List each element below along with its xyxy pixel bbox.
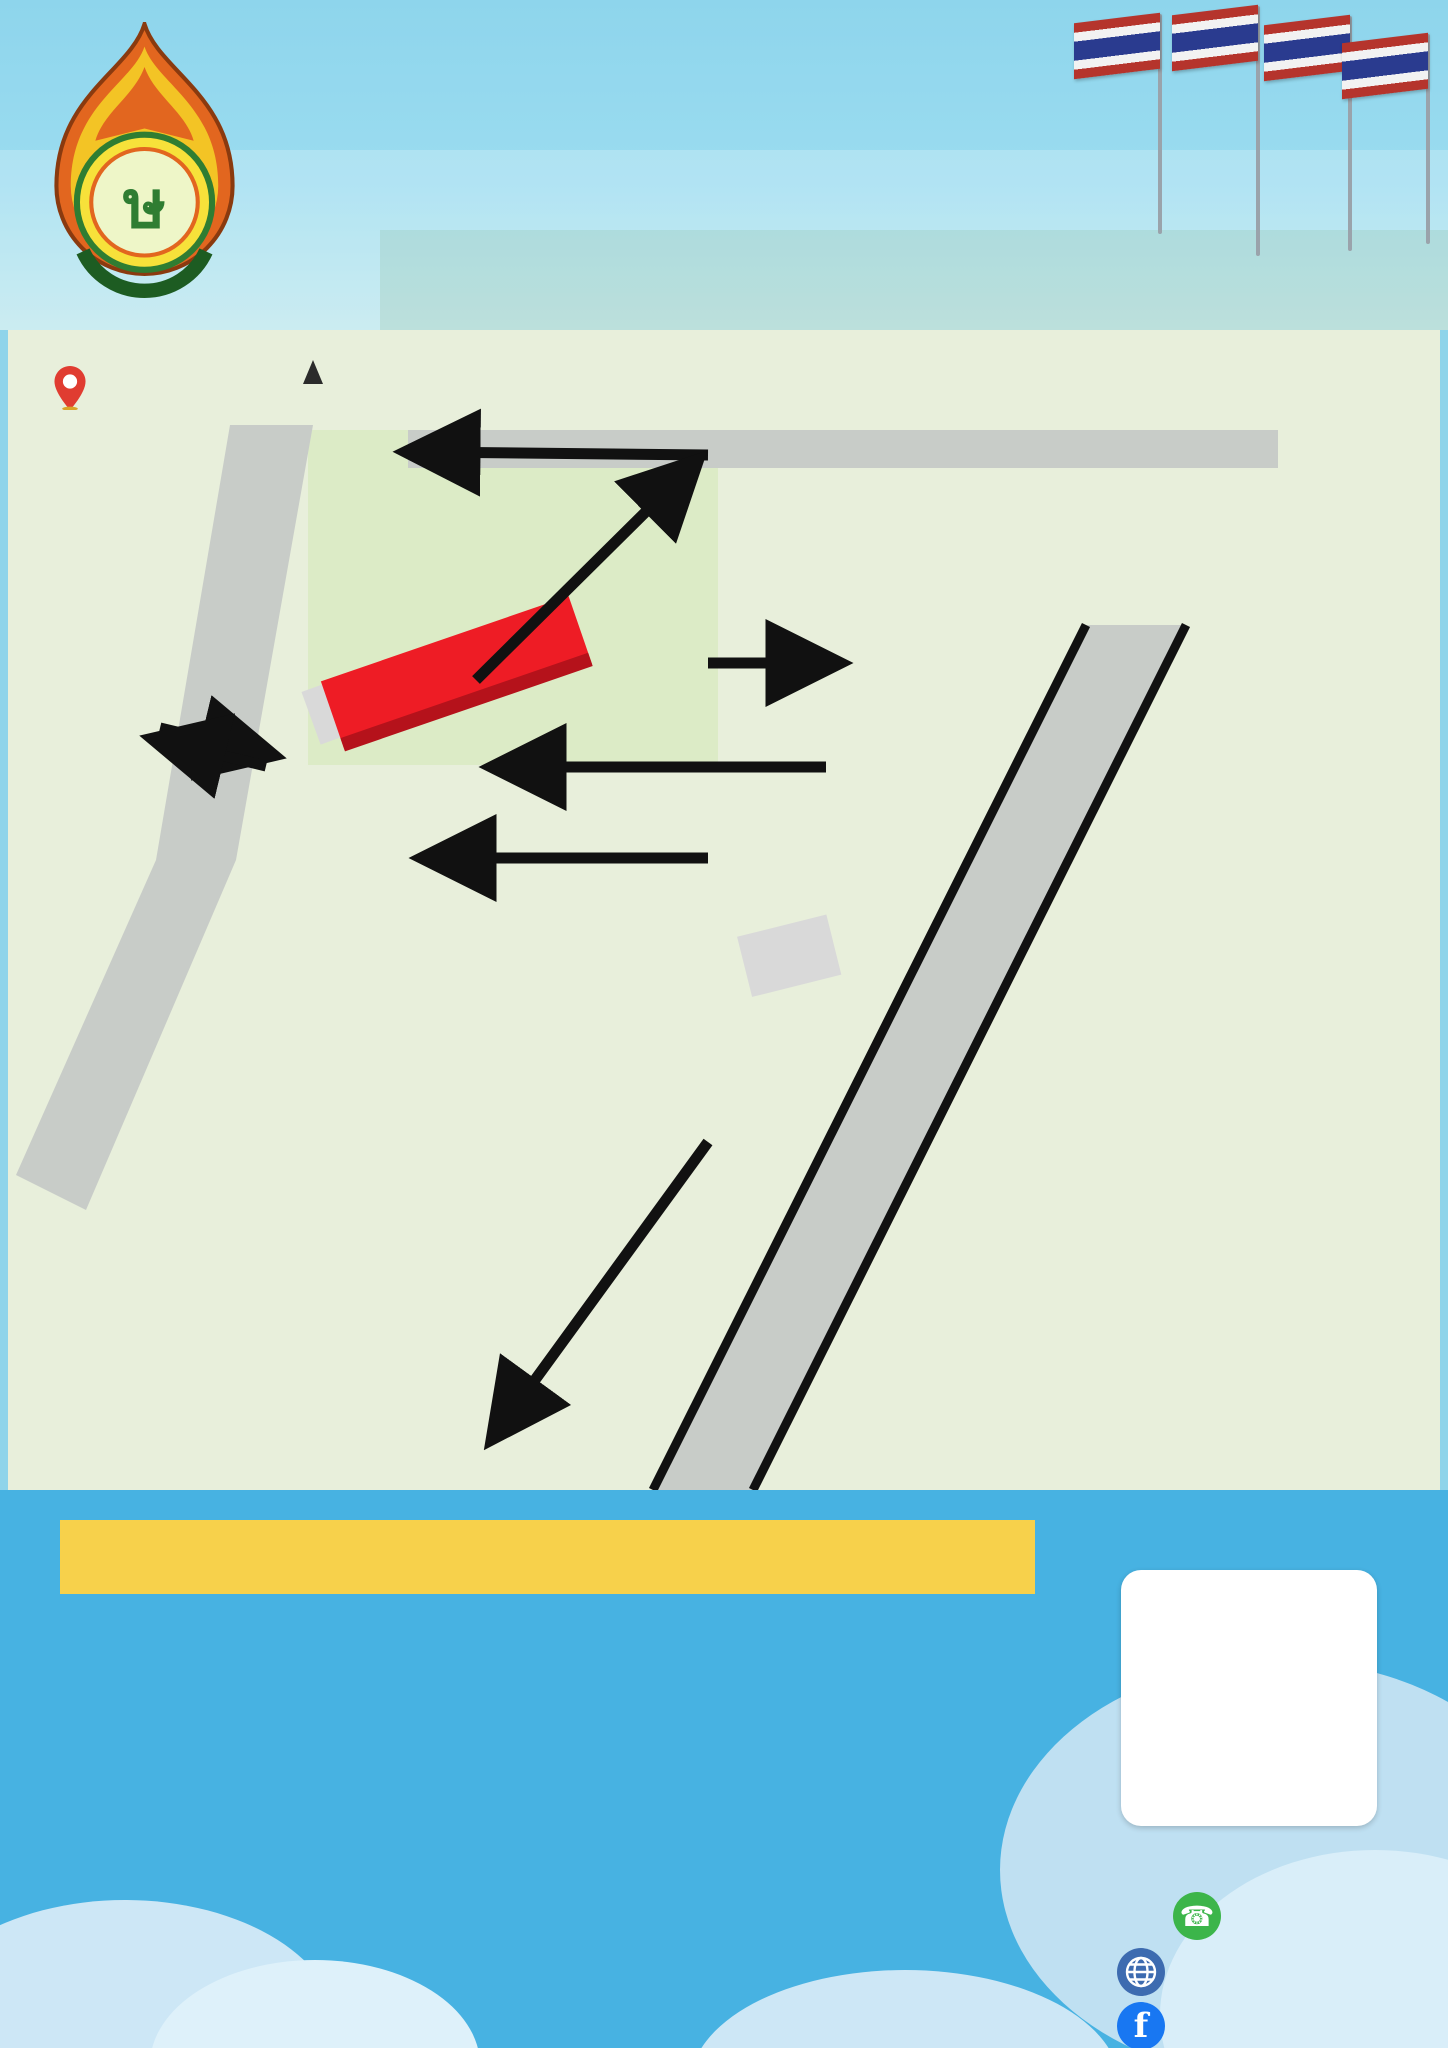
school-photo-backdrop2 [380,230,1448,330]
thai-flag [1074,13,1160,80]
info-section: ☎ f [0,1490,1448,2048]
exam-venue-poster: ษ [0,0,1448,2048]
location-pin-icon [54,366,86,414]
website-row [1117,1948,1181,1996]
announcement-panel: ☎ f [1055,1490,1448,2048]
legend-bottom [24,1117,404,1477]
thai-flag [1172,5,1258,72]
exam-room-table [60,1520,1035,1594]
north-arrow-icon [303,360,323,384]
obec-logo: ษ [42,22,247,322]
north-indicator [303,358,323,384]
campus-map [8,330,1440,1490]
table-header [60,1520,1035,1594]
qr-code [1121,1570,1377,1826]
thai-flag [1342,33,1428,100]
facebook-row: f [1117,2002,1181,2048]
svg-text:ษ: ษ [123,167,166,243]
header: ษ [0,0,1448,330]
phone-row: ☎ [1173,1892,1237,1940]
globe-icon [1117,1948,1165,1996]
facebook-icon: f [1117,2002,1165,2048]
legend-top [22,430,473,436]
concrete-court [737,915,841,997]
road-edge [753,625,1186,1490]
venue-line [54,366,96,414]
thai-flag [1264,15,1350,82]
phone-icon: ☎ [1173,1892,1221,1940]
